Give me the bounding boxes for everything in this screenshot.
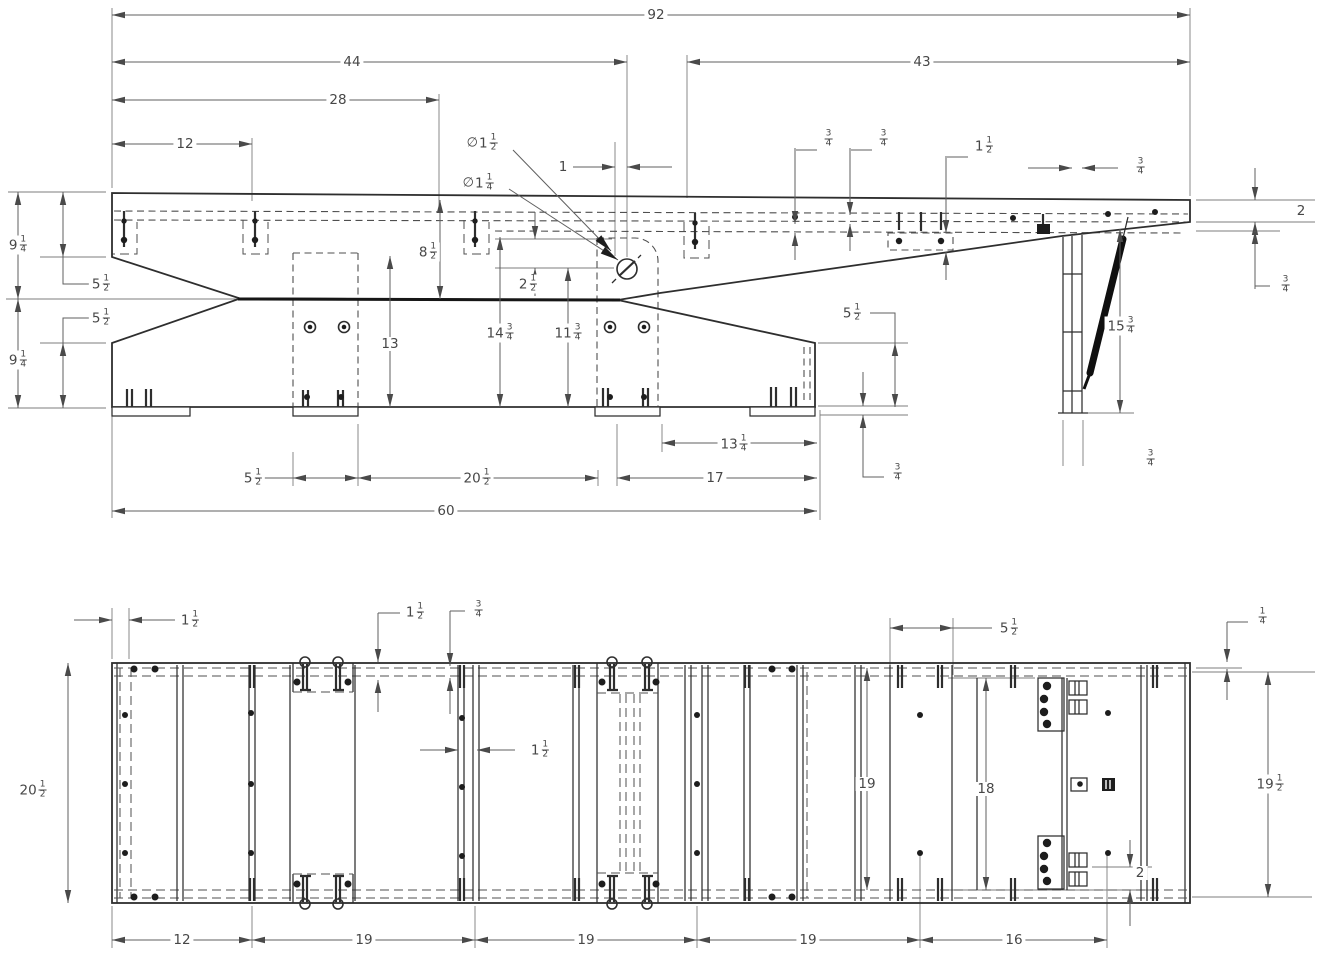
dimension-label: 43 — [910, 55, 933, 69]
gas-strut — [1084, 217, 1128, 389]
dimension-label: 812 — [416, 243, 440, 262]
dimension-label: 112 — [972, 137, 996, 156]
dimension-label: 34 — [1143, 450, 1158, 469]
dimension-label: 34 — [471, 601, 486, 620]
support-leg — [1037, 224, 1088, 413]
dimension-label: 2 — [1294, 204, 1309, 218]
dimension-label: 14 — [1255, 608, 1270, 627]
dimension-label: 914 — [6, 236, 30, 255]
side-dimension-lines — [18, 15, 1190, 511]
side-elevation-view — [6, 8, 1315, 520]
dimension-label: 19 — [574, 933, 597, 947]
dimension-label: 2012 — [461, 469, 494, 488]
dimension-label: 19 — [796, 933, 819, 947]
dimension-label: 92 — [644, 8, 667, 22]
technical-drawing-sheet: 9244432812∅112∅1141343411234234153451234… — [0, 0, 1320, 958]
dimension-label: 112 — [528, 741, 552, 760]
dimension-label: 18 — [974, 782, 997, 796]
drawing-canvas — [0, 0, 1320, 958]
dimension-label: 1134 — [552, 324, 585, 343]
dimension-label: 2012 — [17, 781, 50, 800]
dimension-label: 34 — [821, 130, 836, 149]
dimension-label: 28 — [326, 93, 349, 107]
plan-view — [68, 608, 1315, 948]
dimension-label: 16 — [1002, 933, 1025, 947]
dimension-label: 34 — [1133, 158, 1148, 177]
fold-hinge-hardware — [1038, 678, 1115, 889]
dimension-label: 512 — [89, 275, 113, 294]
dimension-label: 914 — [6, 351, 30, 370]
dimension-label: 1 — [556, 160, 571, 174]
dimension-label: 1912 — [1254, 775, 1287, 794]
dimension-label: 512 — [840, 304, 864, 323]
dimension-label: 512 — [997, 619, 1021, 638]
dimension-label: ∅114 — [460, 174, 497, 193]
dimension-label: 512 — [89, 309, 113, 328]
hinge-plates — [293, 657, 660, 909]
dimension-label: 19 — [352, 933, 375, 947]
dimension-label: 12 — [170, 933, 193, 947]
dimension-label: 1534 — [1105, 317, 1138, 336]
dimension-label: 2 — [1133, 866, 1148, 880]
dimension-label: 34 — [1278, 276, 1293, 295]
plan-bolt-dots — [122, 666, 1111, 901]
dimension-label: 112 — [178, 611, 202, 630]
dimension-label: 13 — [378, 337, 401, 351]
dimension-label: ∅112 — [464, 134, 501, 153]
dimension-label: 17 — [703, 471, 726, 485]
dimension-label: 19 — [855, 777, 878, 791]
dimension-label: 1314 — [718, 435, 751, 454]
dimension-label: 512 — [241, 469, 265, 488]
dimension-label: 1434 — [484, 324, 517, 343]
dimension-label: 12 — [173, 137, 196, 151]
dimension-label: 212 — [516, 275, 540, 294]
dimension-label: 60 — [434, 504, 457, 518]
gusset-bolts — [305, 322, 650, 333]
dimension-label: 34 — [890, 464, 905, 483]
foot-plates — [112, 407, 815, 416]
dimension-label: 44 — [340, 55, 363, 69]
dimension-label: 112 — [403, 603, 427, 622]
dimension-label: 34 — [876, 130, 891, 149]
